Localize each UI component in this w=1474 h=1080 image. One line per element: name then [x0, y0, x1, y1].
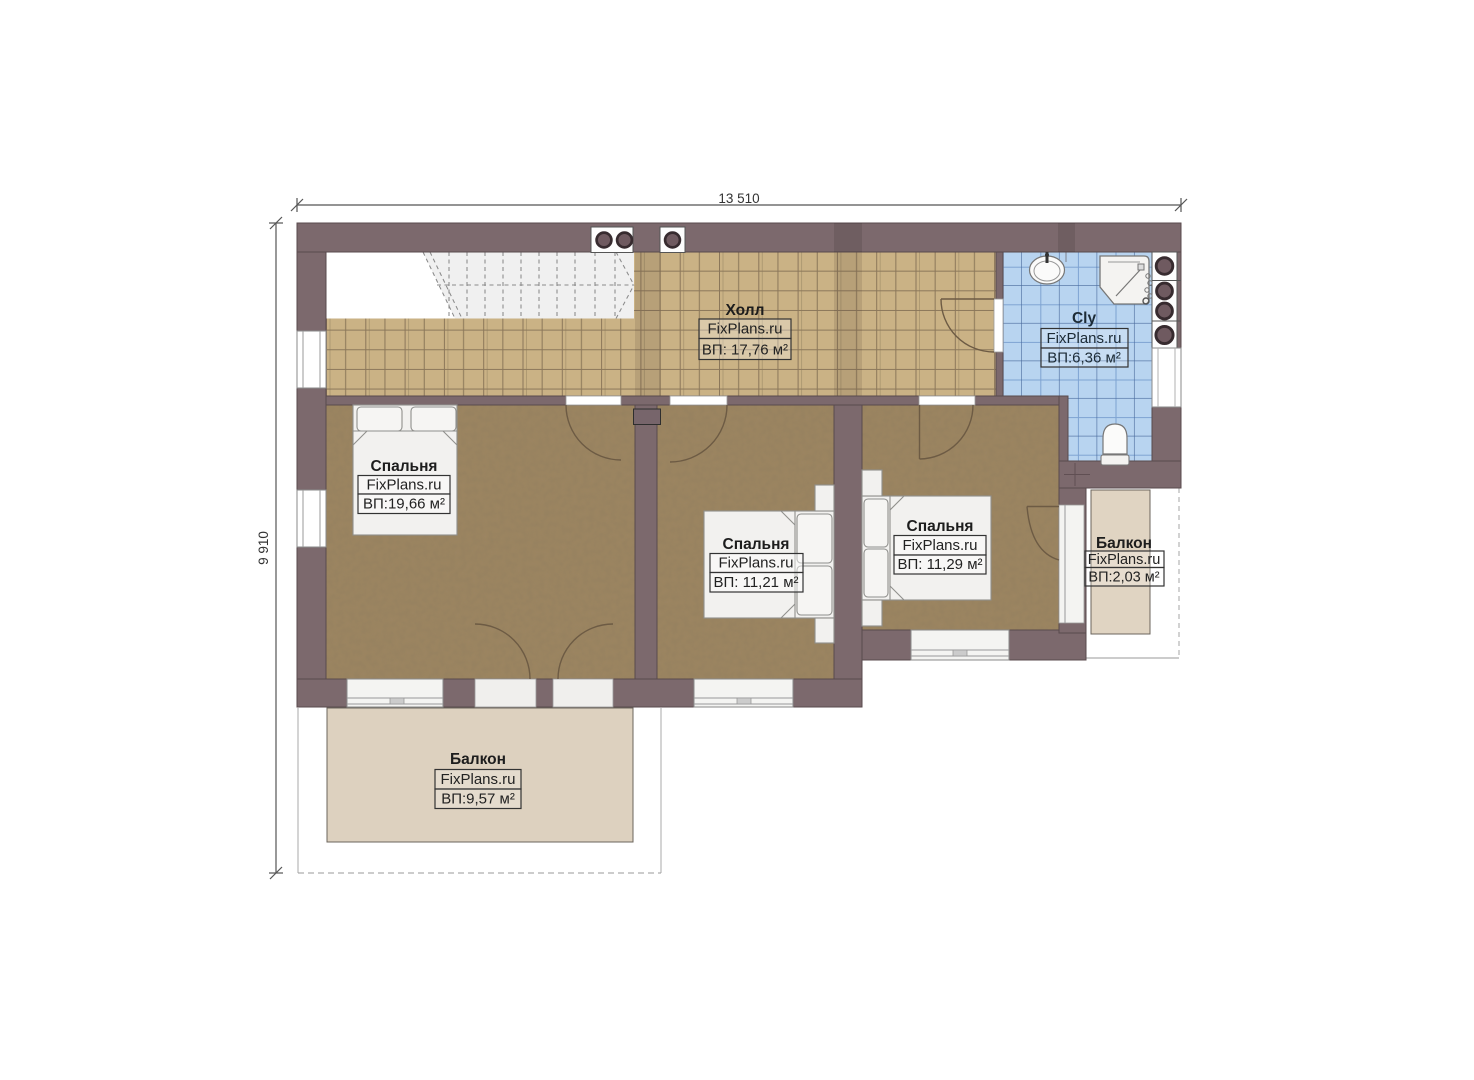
svg-text:ВП:6,36 м²: ВП:6,36 м²	[1047, 350, 1121, 367]
svg-text:Балкон: Балкон	[1096, 535, 1152, 552]
svg-text:ВП:19,66 м²: ВП:19,66 м²	[363, 496, 445, 513]
svg-text:ВП:2,03 м²: ВП:2,03 м²	[1088, 570, 1159, 586]
svg-text:Холл: Холл	[726, 302, 765, 319]
svg-text:FixPlans.ru: FixPlans.ru	[1088, 552, 1161, 568]
svg-text:9 910: 9 910	[256, 531, 271, 565]
svg-text:FixPlans.ru: FixPlans.ru	[718, 555, 793, 572]
svg-text:Спальня: Спальня	[907, 518, 974, 535]
svg-text:FixPlans.ru: FixPlans.ru	[707, 321, 782, 338]
svg-text:FixPlans.ru: FixPlans.ru	[366, 477, 441, 494]
svg-text:Cly: Cly	[1072, 310, 1097, 327]
svg-text:ВП:9,57 м²: ВП:9,57 м²	[441, 791, 515, 808]
svg-text:Спальня: Спальня	[723, 536, 790, 553]
svg-text:FixPlans.ru: FixPlans.ru	[1046, 330, 1121, 347]
svg-text:FixPlans.ru: FixPlans.ru	[440, 771, 515, 788]
svg-text:ВП: 11,21 м²: ВП: 11,21 м²	[713, 574, 798, 591]
svg-text:Балкон: Балкон	[450, 751, 506, 768]
svg-text:Спальня: Спальня	[371, 458, 438, 475]
svg-text:ВП: 17,76 м²: ВП: 17,76 м²	[702, 342, 788, 359]
svg-text:ВП: 11,29 м²: ВП: 11,29 м²	[897, 556, 982, 573]
svg-text:FixPlans.ru: FixPlans.ru	[902, 537, 977, 554]
svg-text:13 510: 13 510	[718, 191, 759, 206]
